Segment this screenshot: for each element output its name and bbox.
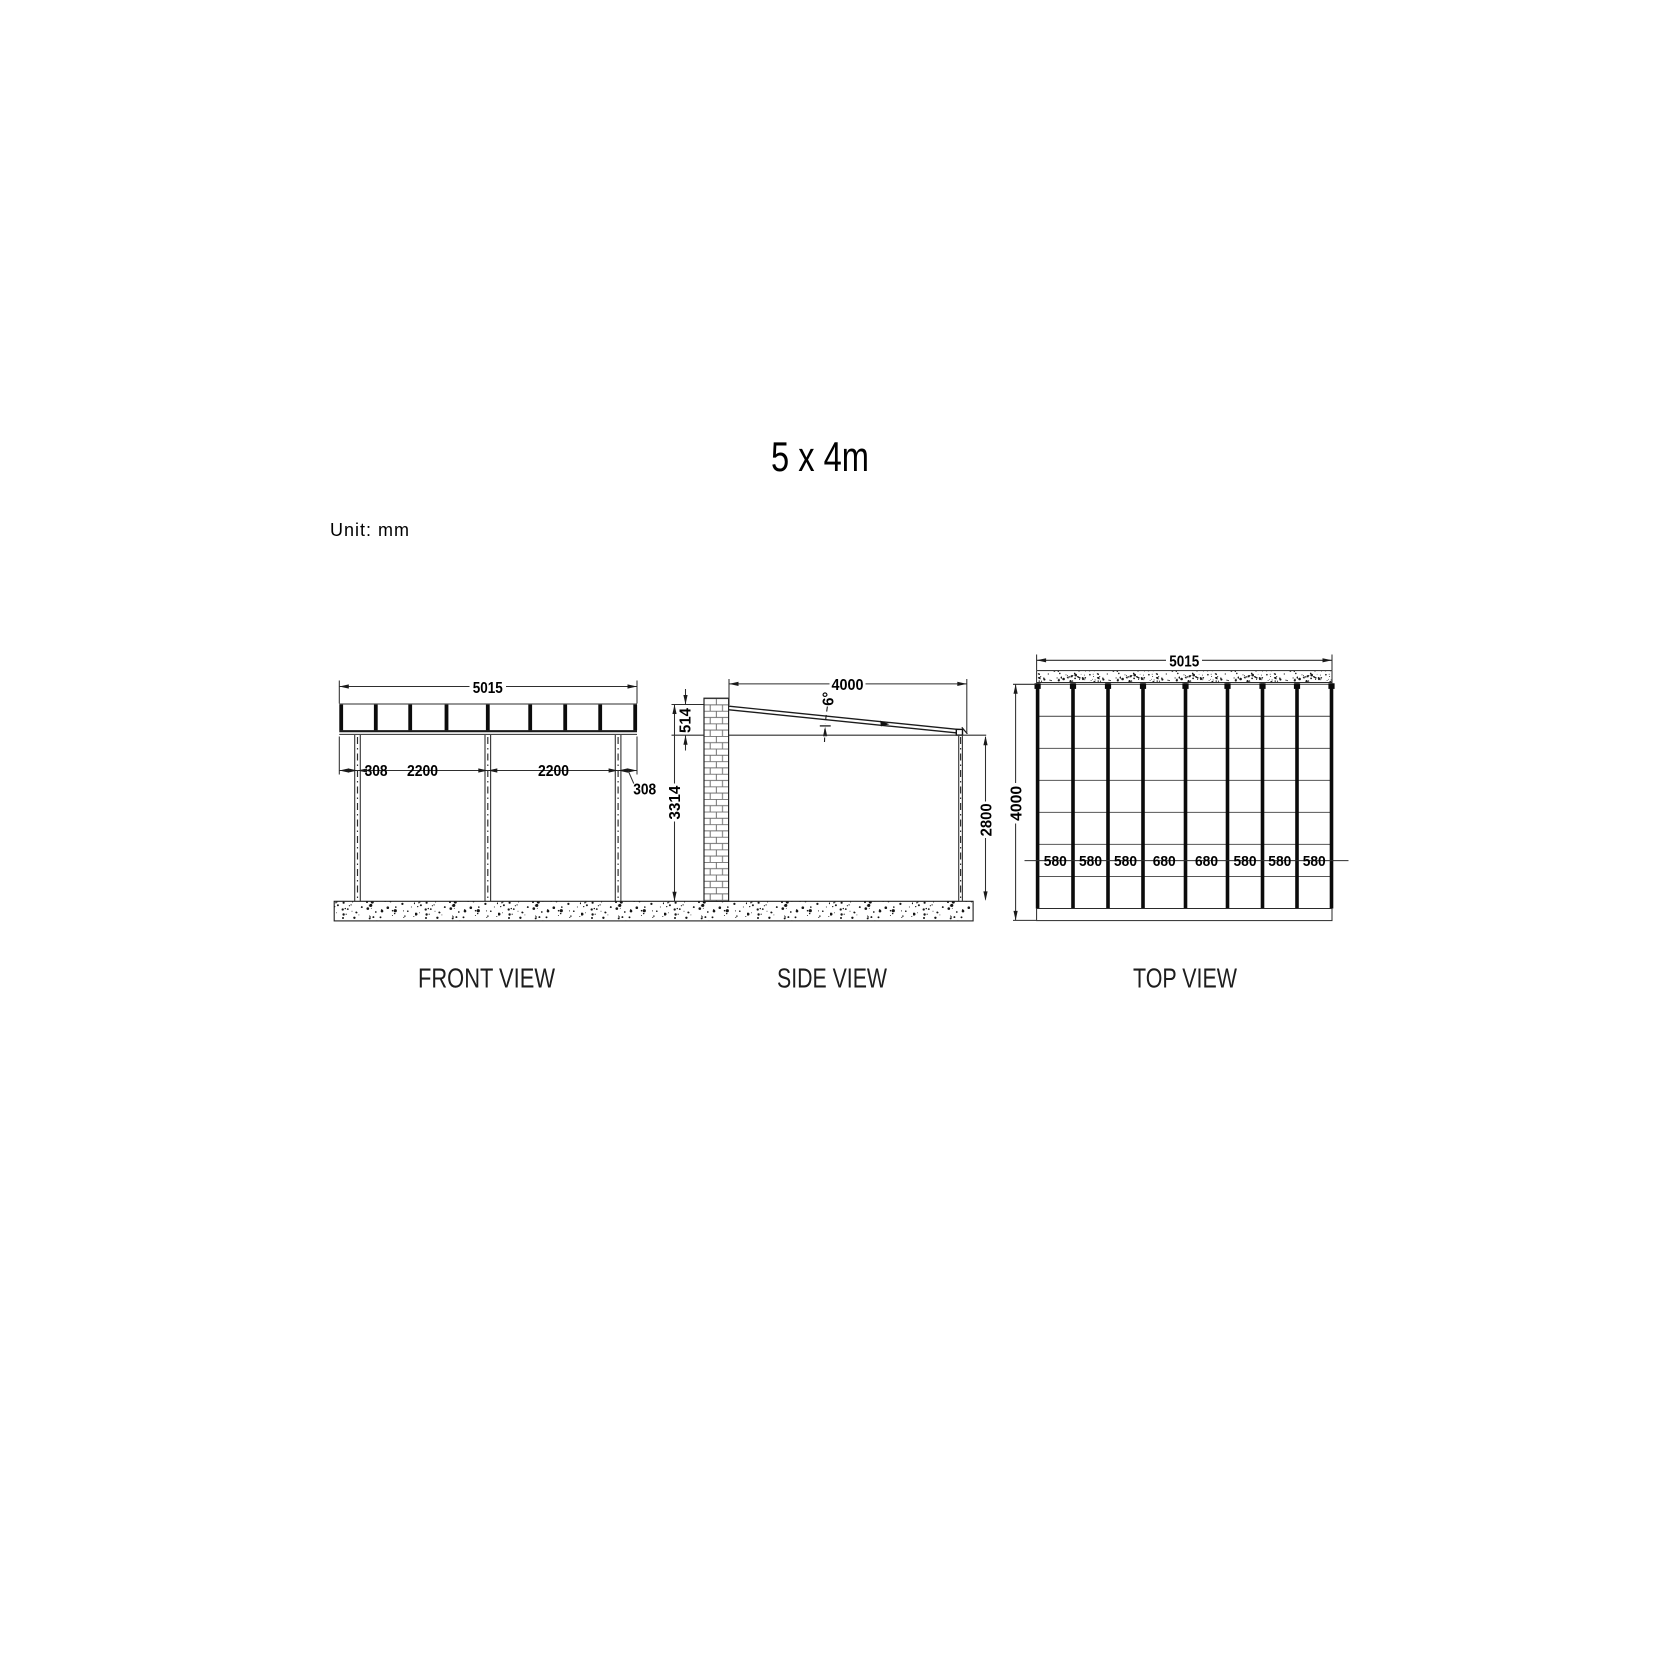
svg-text:580: 580 [1079,853,1102,870]
svg-text:5015: 5015 [473,680,503,697]
svg-text:680: 680 [1153,853,1176,870]
svg-text:3314: 3314 [667,786,684,820]
svg-text:580: 580 [1268,853,1291,870]
svg-text:2200: 2200 [407,763,438,780]
svg-text:4000: 4000 [1009,786,1026,821]
svg-text:5 x 4m: 5 x 4m [771,433,869,480]
svg-text:FRONT VIEW: FRONT VIEW [418,963,555,994]
svg-text:580: 580 [1234,853,1257,870]
svg-text:308: 308 [365,763,388,780]
svg-text:580: 580 [1303,853,1326,870]
svg-text:5015: 5015 [1169,654,1199,671]
svg-text:514: 514 [678,708,695,733]
svg-text:TOP VIEW: TOP VIEW [1133,963,1237,994]
svg-text:4000: 4000 [832,677,864,694]
svg-text:308: 308 [633,782,656,799]
svg-text:Unit: mm: Unit: mm [330,520,410,540]
svg-text:580: 580 [1044,853,1067,870]
svg-text:SIDE VIEW: SIDE VIEW [777,963,887,994]
svg-text:680: 680 [1195,853,1218,870]
svg-text:2200: 2200 [538,763,569,780]
svg-text:580: 580 [1114,853,1137,870]
svg-text:2800: 2800 [978,803,995,836]
